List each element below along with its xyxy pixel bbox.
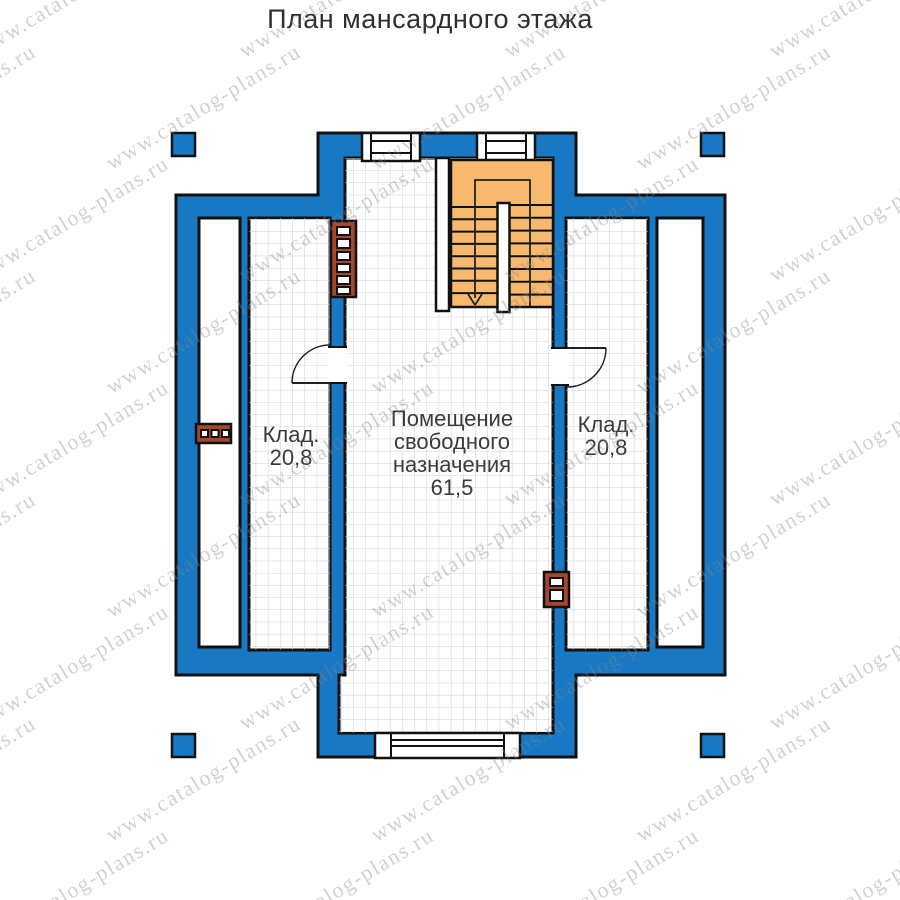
- chimney-block-top: [331, 221, 356, 297]
- page-title: План мансардного этажа: [0, 4, 860, 35]
- staircase: [451, 160, 553, 312]
- left-storage-name: Клад.: [241, 423, 341, 446]
- window-bottom: [375, 733, 520, 758]
- right-storage-label: Клад. 20,8: [556, 413, 656, 459]
- chimney-block-left: [196, 424, 231, 443]
- right-storage-name: Клад.: [556, 413, 656, 436]
- stair-opening-railing: [436, 158, 449, 311]
- left-storage-area: 20,8: [241, 446, 341, 469]
- right-storage-area: 20,8: [556, 436, 656, 459]
- window-top-right: [477, 133, 535, 161]
- window-top-left: [362, 133, 420, 161]
- corner-pad-top-left: [172, 133, 195, 156]
- corner-pad-bottom-left: [172, 734, 195, 757]
- floor-plan-page: План мансардного этажа Помещение свободн…: [0, 0, 900, 900]
- chimney-block-right: [544, 572, 569, 607]
- corner-pad-top-right: [701, 133, 724, 156]
- center-room-area: 61,5: [352, 476, 552, 499]
- left-storage-label: Клад. 20,8: [241, 423, 341, 469]
- center-room-name-line3: назначения: [352, 453, 552, 476]
- stair-divider-wall: [498, 203, 510, 312]
- center-room-name-line2: свободного: [352, 430, 552, 453]
- corner-pad-bottom-right: [701, 734, 724, 757]
- center-room-name-line1: Помещение: [352, 407, 552, 430]
- center-room-label: Помещение свободного назначения 61,5: [352, 407, 552, 499]
